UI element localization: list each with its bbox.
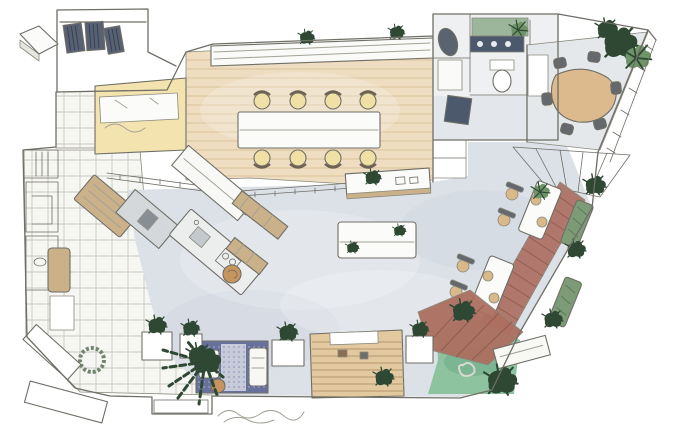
utility-cabinet <box>444 95 471 124</box>
lounge-armchair <box>249 348 267 386</box>
locker-unit <box>104 26 124 54</box>
storage-column <box>433 140 466 178</box>
sink-basin <box>491 41 497 47</box>
screenshot-root <box>0 0 700 433</box>
credenza <box>528 55 548 96</box>
kitchen-stool <box>223 265 241 283</box>
shelf-plant <box>298 29 315 44</box>
sink-basin <box>477 41 483 47</box>
dining-seat <box>537 217 547 227</box>
entry-vestibule <box>20 9 176 92</box>
steps-planter <box>406 336 433 363</box>
wall-bench <box>48 248 70 292</box>
fabric-squiggle <box>218 410 304 423</box>
terrace-planter <box>142 332 172 360</box>
steps-object <box>338 350 347 357</box>
steps-object <box>360 352 368 359</box>
center-island-table <box>338 222 416 258</box>
wall-cabinet-low <box>50 296 74 330</box>
locker-unit <box>63 23 85 53</box>
sink-basin <box>505 41 511 47</box>
basin-pedestal <box>438 60 462 90</box>
meeting-table <box>552 69 617 122</box>
dining-seat <box>489 293 499 303</box>
floor-plan-sketch <box>0 0 700 433</box>
console-table <box>345 168 431 199</box>
dining-seat <box>483 271 493 281</box>
nook-desk <box>99 93 178 123</box>
steps-top-board <box>330 331 378 345</box>
locker-unit <box>85 21 105 50</box>
lounge-planter <box>272 340 304 366</box>
